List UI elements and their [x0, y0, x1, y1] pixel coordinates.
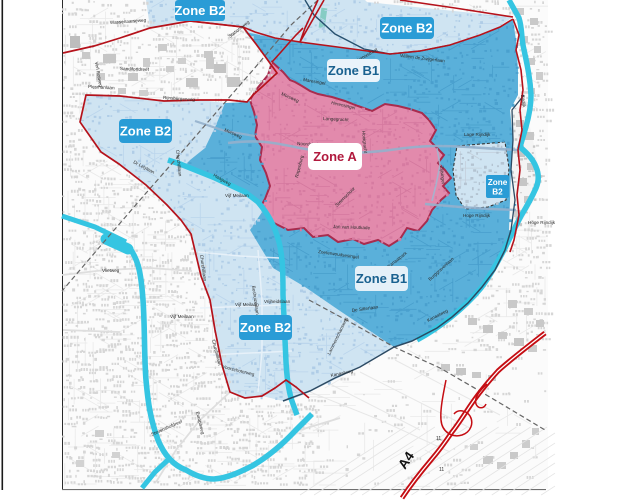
svg-text:Vrijheidslaan: Vrijheidslaan — [264, 299, 291, 304]
svg-text:Zone A: Zone A — [313, 149, 357, 164]
svg-text:Zone B1: Zone B1 — [328, 63, 379, 78]
svg-text:Zone B1: Zone B1 — [356, 271, 407, 286]
svg-text:Vijf Meilaan: Vijf Meilaan — [170, 314, 194, 319]
svg-text:B2: B2 — [492, 188, 503, 197]
svg-text:Sandifortdreef: Sandifortdreef — [120, 66, 150, 72]
svg-text:Zone B2: Zone B2 — [120, 124, 171, 139]
svg-text:Hoge Rijndijk: Hoge Rijndijk — [463, 213, 491, 218]
svg-text:Vijf Meilaan: Vijf Meilaan — [225, 193, 249, 198]
svg-text:Zone: Zone — [488, 178, 508, 187]
svg-text:11: 11 — [439, 467, 444, 473]
svg-text:Vlietweg: Vlietweg — [102, 268, 120, 273]
svg-text:Zone B2: Zone B2 — [381, 21, 432, 36]
svg-text:11: 11 — [436, 436, 441, 442]
svg-text:Zone B2: Zone B2 — [240, 320, 291, 335]
svg-text:Zone B2: Zone B2 — [174, 3, 225, 18]
svg-text:Hoge Rijndijk: Hoge Rijndijk — [528, 220, 556, 225]
svg-text:Lage Rijndijk: Lage Rijndijk — [464, 132, 491, 137]
